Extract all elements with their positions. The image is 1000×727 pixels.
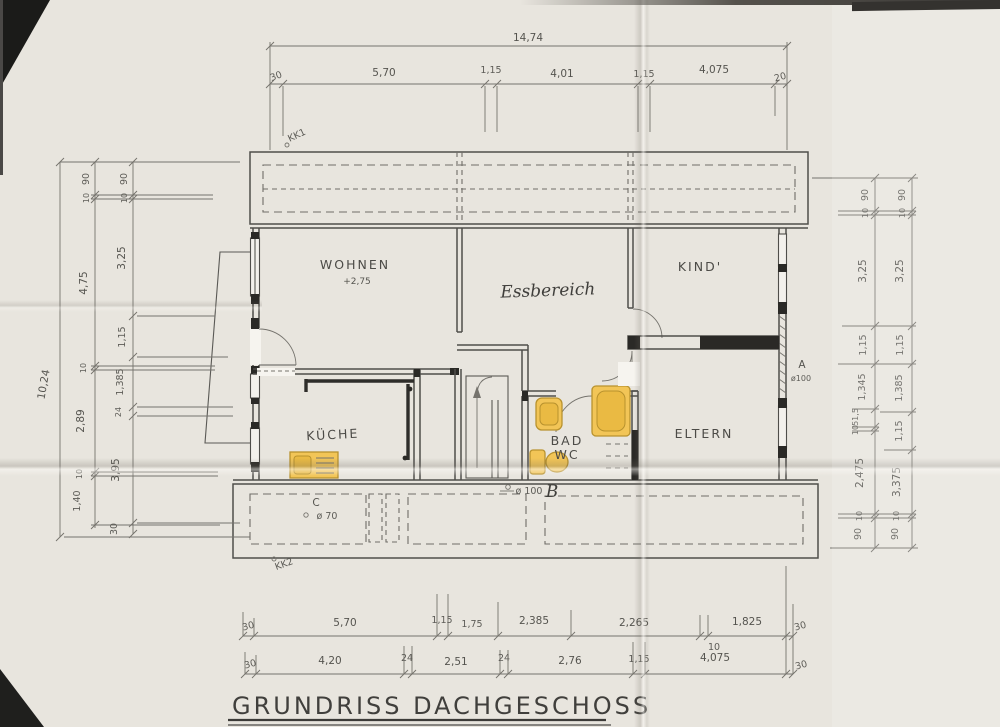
bathtub (592, 386, 630, 436)
dim-label: 1,385 (115, 368, 126, 395)
dim-label: 2,51 (444, 656, 467, 668)
dim-label: 4,075 (699, 64, 729, 76)
paper-fold-horizontal-left (0, 300, 262, 312)
room-label-eltern: ELTERN (675, 426, 734, 441)
dim-label: 1,15 (431, 615, 452, 626)
mark-a: A (798, 359, 806, 371)
dim-label: 4,20 (318, 655, 341, 667)
east-wall (778, 228, 787, 480)
mark-kk2: KK2 (274, 556, 295, 573)
drawing-title: GRUNDRISS DACHGESCHOSS (232, 692, 651, 720)
title-block: GRUNDRISS DACHGESCHOSS (228, 692, 651, 725)
room-level-wohnen: +2,75 (343, 277, 371, 287)
dim-label: 1,40 (72, 490, 83, 511)
dim-label: 10 (82, 193, 91, 203)
dim-label: 2,76 (558, 655, 582, 667)
extension-lines (60, 162, 250, 537)
balcony (205, 252, 253, 443)
dim-label: 3,25 (116, 246, 128, 269)
floor-plan (205, 152, 818, 558)
dim-label: 30 (241, 620, 256, 634)
mark-c-diameter: ø 70 (317, 511, 338, 522)
kitchen-counter (306, 379, 414, 460)
dim-label: 1,15 (480, 65, 501, 76)
scanned-floor-plan-page: WOHNEN +2,75 Essbereich KIND' KÜCHE BAD … (0, 0, 1000, 727)
dimension-chain-top: 14,74 30 5,70 1,15 4,01 1,15 4,075 20 (266, 32, 791, 150)
dim-label: 24 (114, 407, 123, 417)
scan-edge-left (0, 0, 3, 175)
dim-label: 30 (109, 523, 120, 535)
paper-fold-vertical (634, 0, 650, 727)
dim-label: 5,70 (333, 617, 356, 629)
bathroom-sink (536, 398, 562, 430)
dim-label: 24 (401, 653, 413, 664)
dim-label: 1,15 (117, 326, 128, 347)
dimension-chain-bottom-lower: 30 4,20 24 2,51 24 2,76 1,15 4,075 30 (241, 642, 809, 678)
dim-label: 90 (119, 173, 130, 185)
dimension-chain-left: 10,24 90 10 4,75 10 2,89 10 1,40 90 10 3… (36, 158, 250, 541)
dim-label: 30 (243, 658, 258, 672)
annotations: KK1 KK2 A ø100 ø 100 B C ø 70 (272, 127, 811, 573)
west-wall (250, 228, 261, 480)
scan-shadow-top-left (0, 0, 50, 88)
dim-label: 10,24 (36, 368, 53, 400)
dim-label: 5,70 (372, 67, 395, 79)
dim-label: 24 (498, 653, 510, 664)
room-label-kind: KIND' (678, 259, 722, 274)
mark-b-diameter: ø 100 (516, 486, 543, 497)
scan-shadow-bottom-left (0, 669, 44, 727)
dim-label: 20 (773, 71, 788, 85)
dim-label: 1,825 (732, 616, 762, 628)
dim-label: 10 (120, 193, 129, 203)
dim-label: 90 (81, 173, 92, 185)
dimension-ticks (56, 158, 137, 541)
north-roof-band (250, 152, 808, 228)
dim-label: 4,01 (550, 68, 573, 80)
wall-hatching (779, 316, 786, 393)
dim-label: 1,75 (461, 619, 482, 630)
room-label-essbereich: Essbereich (499, 279, 596, 302)
room-labels: WOHNEN +2,75 Essbereich KIND' KÜCHE BAD … (306, 257, 734, 462)
room-label-wohnen: WOHNEN (320, 257, 390, 272)
dim-label: 2,385 (519, 615, 549, 627)
room-label-bad: BAD (551, 433, 584, 448)
dim-label: 30 (794, 659, 809, 673)
dim-label: 14,74 (513, 32, 543, 44)
mark-c: C (312, 497, 319, 509)
dim-label: 10 (79, 363, 88, 373)
dim-label: 2,89 (75, 409, 87, 432)
dim-label: 30 (793, 620, 808, 634)
mark-kk1: KK1 (286, 127, 307, 145)
dim-label: 4,075 (700, 652, 730, 664)
balcony-door (259, 329, 296, 365)
room-label-kueche: KÜCHE (306, 425, 360, 444)
mark-a-diameter: ø100 (791, 374, 811, 383)
dim-label: 30 (269, 69, 284, 83)
dim-label: 4,75 (78, 271, 90, 294)
paper-shading-right (832, 0, 1000, 727)
mark-b: B (545, 482, 559, 502)
extension-lines (270, 42, 787, 150)
